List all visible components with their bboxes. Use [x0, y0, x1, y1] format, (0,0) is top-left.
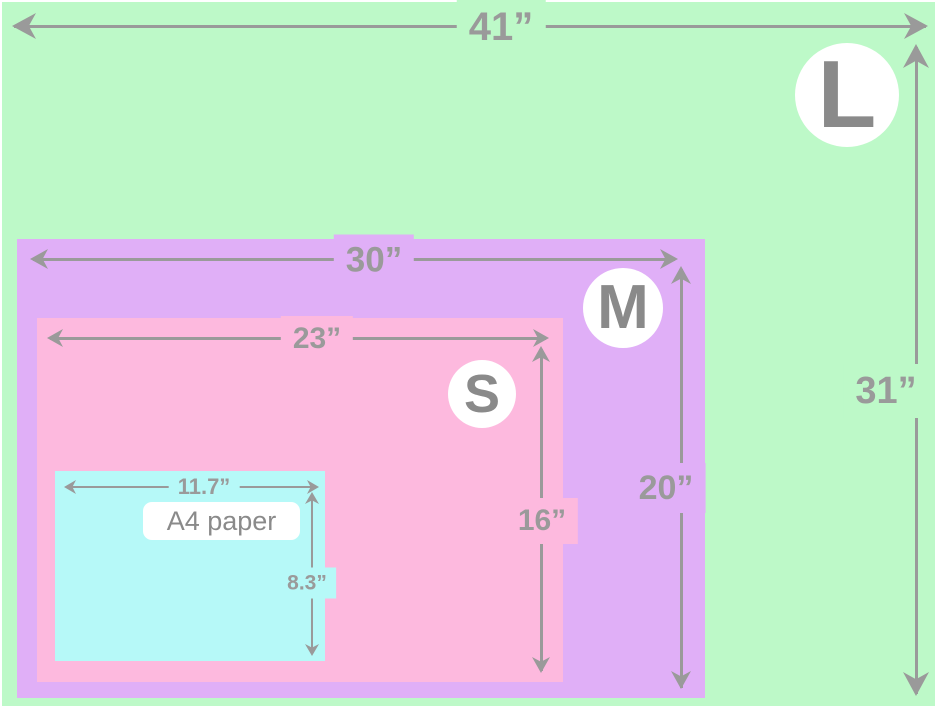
size-s-badge: S [448, 360, 516, 428]
dimension-label-m-width: 30” [334, 235, 414, 286]
dimension-label-a4-width: 11.7” [169, 471, 240, 503]
dimension-label-s-width: 23” [281, 316, 353, 362]
size-comparison-diagram: 41” 31” 30” 20” 23” 16” 11.7” 8.3” A4 pa… [0, 0, 938, 712]
dimension-label-a4-height: 8.3” [278, 568, 336, 599]
dimension-label-s-height: 16” [506, 498, 578, 544]
size-m-badge: M [583, 268, 663, 348]
size-l-badge: L [795, 43, 899, 147]
dimension-label-m-height: 20” [627, 463, 706, 513]
a4-paper-label: A4 paper [143, 502, 300, 540]
dimension-label-l-height: 31” [843, 364, 928, 418]
dimension-label-l-width: 41” [457, 0, 546, 55]
